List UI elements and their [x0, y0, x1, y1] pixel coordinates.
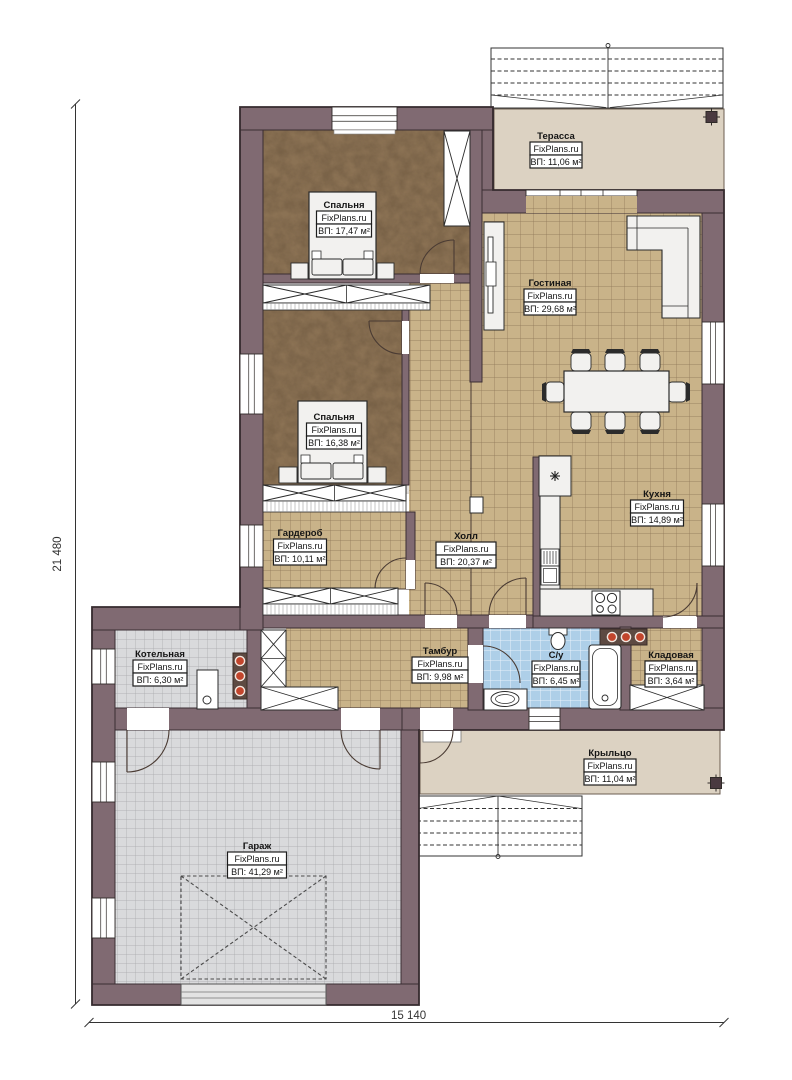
svg-text:Гардероб: Гардероб: [278, 528, 323, 539]
svg-text:FixPlans.ru: FixPlans.ru: [234, 854, 279, 864]
svg-text:Спальня: Спальня: [313, 412, 354, 423]
svg-text:FixPlans.ru: FixPlans.ru: [533, 144, 578, 154]
svg-text:FixPlans.ru: FixPlans.ru: [443, 544, 488, 554]
svg-text:ВП: 14,89 м²: ВП: 14,89 м²: [631, 515, 683, 525]
svg-text:Гараж: Гараж: [243, 841, 272, 852]
svg-text:ВП: 3,64 м²: ВП: 3,64 м²: [648, 676, 695, 686]
svg-text:FixPlans.ru: FixPlans.ru: [533, 663, 578, 673]
svg-text:Холл: Холл: [454, 531, 478, 542]
svg-text:Кладовая: Кладовая: [648, 650, 694, 661]
svg-text:ВП: 11,06 м²: ВП: 11,06 м²: [530, 157, 581, 167]
svg-text:ВП: 29,68 м²: ВП: 29,68 м²: [524, 304, 576, 314]
svg-text:FixPlans.ru: FixPlans.ru: [587, 761, 632, 771]
svg-text:FixPlans.ru: FixPlans.ru: [648, 663, 693, 673]
svg-text:ВП: 20,37 м²: ВП: 20,37 м²: [440, 557, 492, 567]
svg-text:Котельная: Котельная: [135, 649, 185, 660]
svg-text:ВП: 6,45 м²: ВП: 6,45 м²: [533, 676, 580, 686]
svg-text:Тамбур: Тамбур: [423, 646, 458, 657]
svg-text:FixPlans.ru: FixPlans.ru: [417, 659, 462, 669]
svg-text:21 480: 21 480: [52, 536, 64, 571]
svg-text:FixPlans.ru: FixPlans.ru: [137, 662, 182, 672]
svg-text:FixPlans.ru: FixPlans.ru: [277, 541, 322, 551]
svg-text:FixPlans.ru: FixPlans.ru: [527, 291, 572, 301]
svg-text:ВП: 11,04 м²: ВП: 11,04 м²: [584, 774, 635, 784]
svg-text:ВП: 10,11 м²: ВП: 10,11 м²: [274, 554, 325, 564]
svg-text:ВП: 17,47 м²: ВП: 17,47 м²: [318, 226, 370, 236]
svg-text:ВП: 16,38 м²: ВП: 16,38 м²: [308, 438, 360, 448]
svg-text:Кухня: Кухня: [643, 489, 671, 500]
svg-text:Гостиная: Гостиная: [529, 278, 572, 289]
svg-text:ВП: 41,29 м²: ВП: 41,29 м²: [231, 867, 283, 877]
svg-text:ВП: 6,30 м²: ВП: 6,30 м²: [137, 675, 184, 685]
svg-text:FixPlans.ru: FixPlans.ru: [321, 213, 366, 223]
svg-text:15 140: 15 140: [391, 1010, 426, 1022]
svg-text:ВП: 9,98 м²: ВП: 9,98 м²: [417, 672, 464, 682]
svg-text:FixPlans.ru: FixPlans.ru: [634, 502, 679, 512]
svg-text:Крыльцо: Крыльцо: [588, 748, 631, 759]
svg-text:Терасса: Терасса: [537, 131, 575, 142]
svg-text:С/у: С/у: [549, 650, 565, 661]
svg-text:Спальня: Спальня: [323, 200, 364, 211]
svg-text:FixPlans.ru: FixPlans.ru: [311, 425, 356, 435]
